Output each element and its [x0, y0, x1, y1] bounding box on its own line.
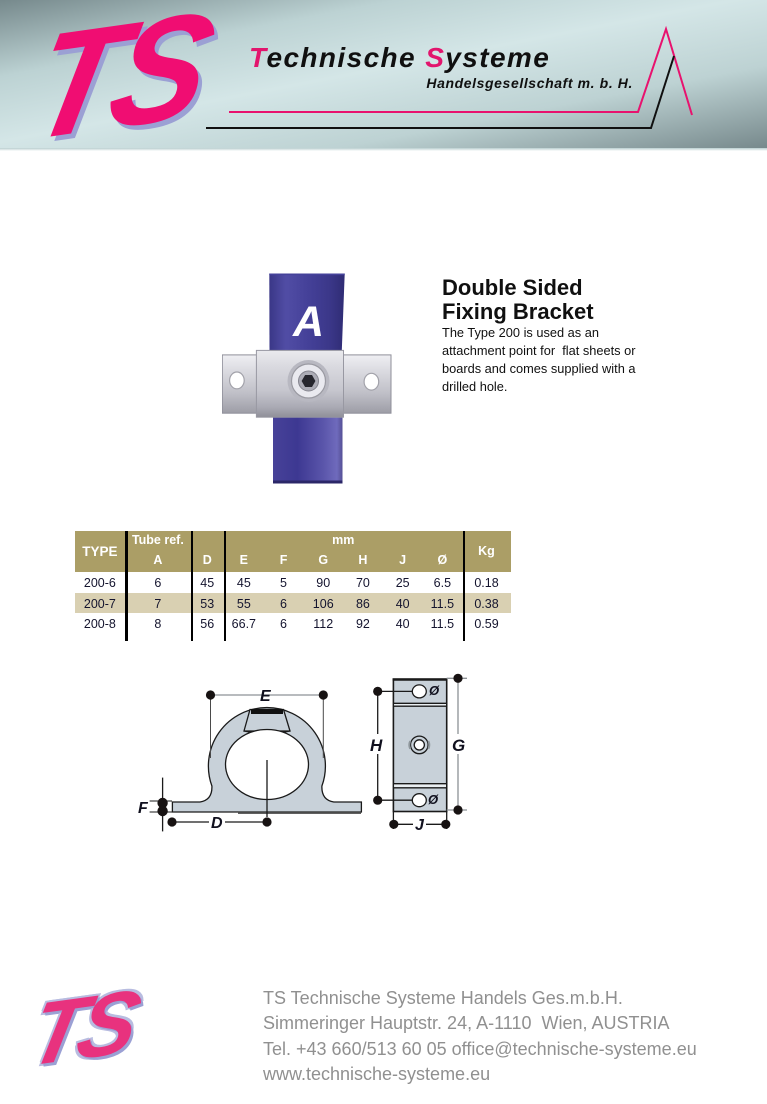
svg-text:H: H [370, 736, 383, 755]
svg-text:A: A [292, 298, 324, 346]
svg-text:Ø: Ø [428, 792, 439, 807]
svg-text:F: F [138, 800, 149, 817]
svg-text:G: G [452, 736, 465, 755]
svg-text:E: E [260, 688, 272, 705]
svg-text:Ø: Ø [429, 683, 440, 698]
svg-text:J: J [415, 817, 425, 834]
svg-text:D: D [211, 815, 223, 832]
